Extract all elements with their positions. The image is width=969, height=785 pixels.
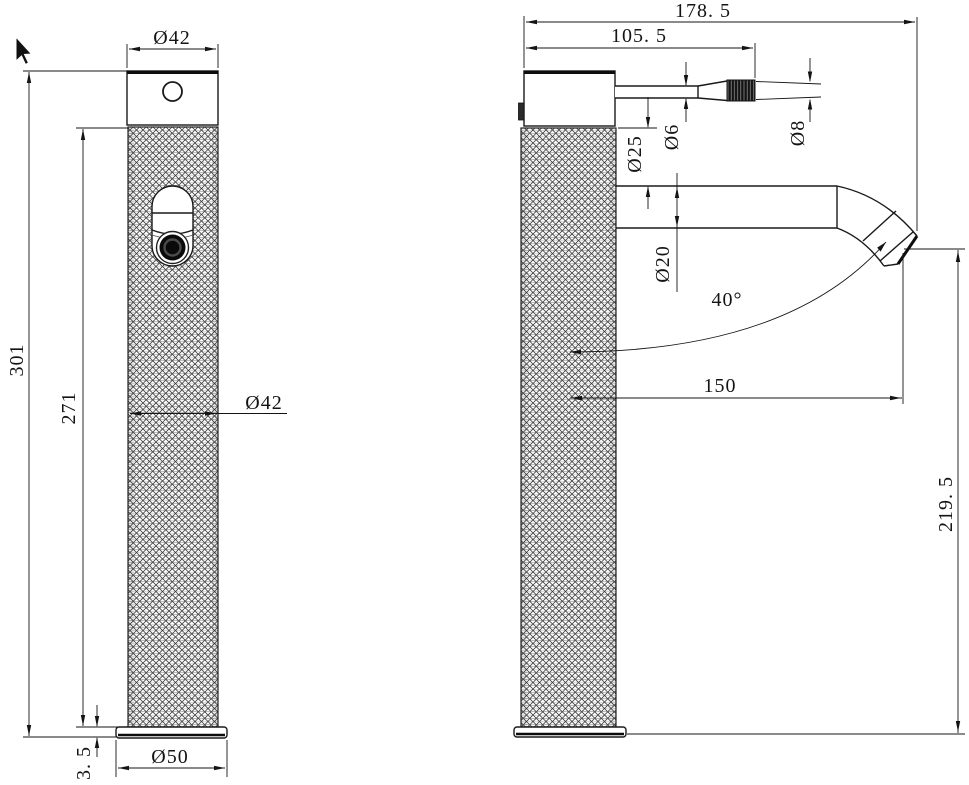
dim-front-base-diameter: Ø50 — [151, 746, 188, 768]
dim-side-spout-reach: 150 — [704, 375, 737, 397]
technical-drawing-canvas: Ø42 301 271 3. 5 Ø50 Ø42 — [0, 0, 969, 785]
dim-side-handle-grip-diameter: Ø8 — [787, 120, 809, 146]
side-handle — [615, 80, 755, 101]
side-body-left-shade — [521, 128, 527, 727]
dim-side-overall-depth: 178. 5 — [675, 0, 731, 22]
dim-side-handle-stem-diameter: Ø6 — [661, 124, 683, 150]
front-base-flange — [116, 727, 227, 738]
front-view — [116, 71, 227, 738]
side-handle-knurled-grip — [727, 80, 755, 101]
dim-side-spout-diameter: Ø20 — [652, 245, 674, 282]
dim-front-overall-height: 301 — [6, 344, 28, 377]
side-cap-notch — [519, 103, 525, 120]
side-aerator-face — [898, 236, 917, 264]
dim-front-top-diameter: Ø42 — [153, 27, 190, 49]
dim-side-spout-angle: 40° — [712, 289, 743, 311]
dim-front-base-thickness: 3. 5 — [73, 746, 95, 780]
front-sensor-window — [163, 82, 182, 101]
side-view — [514, 71, 917, 737]
faucet-engineering-drawing: Ø42 301 271 3. 5 Ø50 Ø42 — [0, 0, 969, 785]
side-sensor-cap — [524, 71, 615, 126]
dim-side-handle-length: 105. 5 — [611, 25, 667, 47]
dim-front-body-height: 271 — [58, 392, 80, 425]
front-body-right-shade — [212, 127, 218, 727]
side-knurled-body — [521, 128, 616, 727]
dim-side-neck-diameter: Ø25 — [624, 135, 646, 172]
dim-front-body-diameter: Ø42 — [245, 392, 282, 414]
front-body-left-shade — [128, 127, 134, 727]
mouse-cursor-icon — [16, 37, 32, 65]
side-body-right-shade — [610, 128, 616, 727]
side-base-flange — [514, 727, 626, 737]
dim-side-outlet-height: 219. 5 — [935, 476, 957, 532]
